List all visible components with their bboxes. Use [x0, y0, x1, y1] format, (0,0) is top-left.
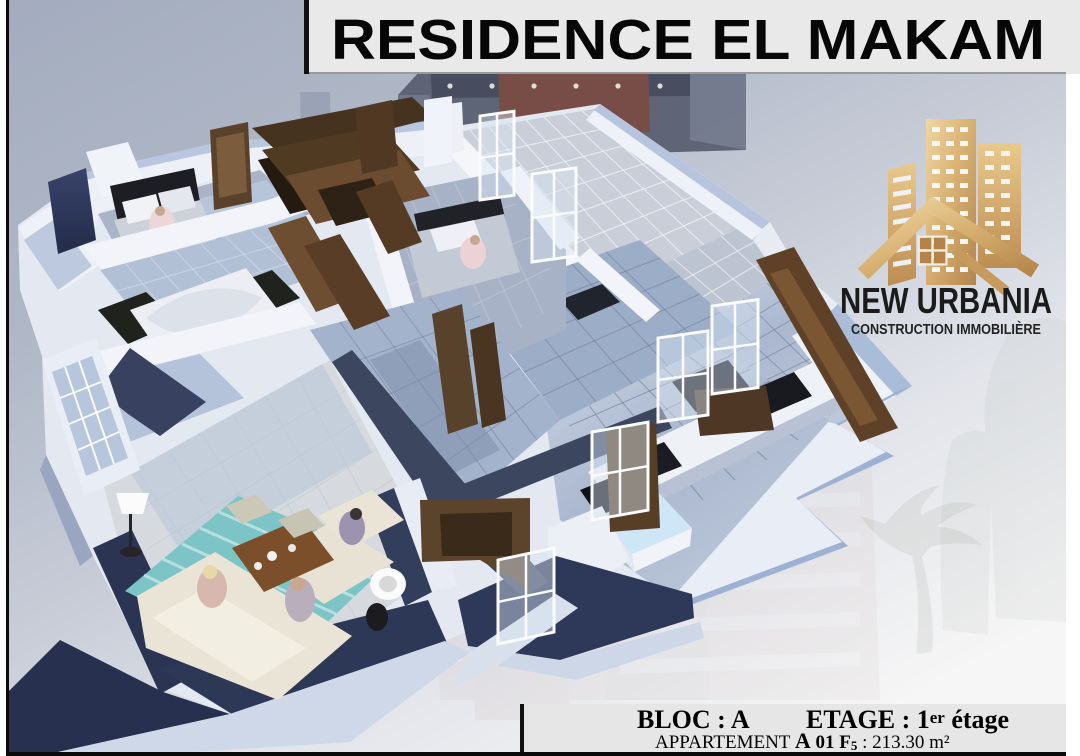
svg-text:RESIDENCE EL MAKAM: RESIDENCE EL MAKAM	[331, 8, 1045, 72]
svg-text:BLOC : A: BLOC : A	[637, 705, 750, 734]
svg-text:NEW URBANIA: NEW URBANIA	[840, 280, 1052, 321]
svg-text:ETAGE : 1er étage: ETAGE : 1er étage	[806, 705, 1009, 734]
svg-text:APPARTEMENT A 01 F5 : 213.: APPARTEMENT A 01 F5 : 213.30 m²	[655, 728, 950, 753]
svg-text:CONSTRUCTION IMMOBILIÈRE: CONSTRUCTION IMMOBILIÈRE	[851, 321, 1041, 338]
